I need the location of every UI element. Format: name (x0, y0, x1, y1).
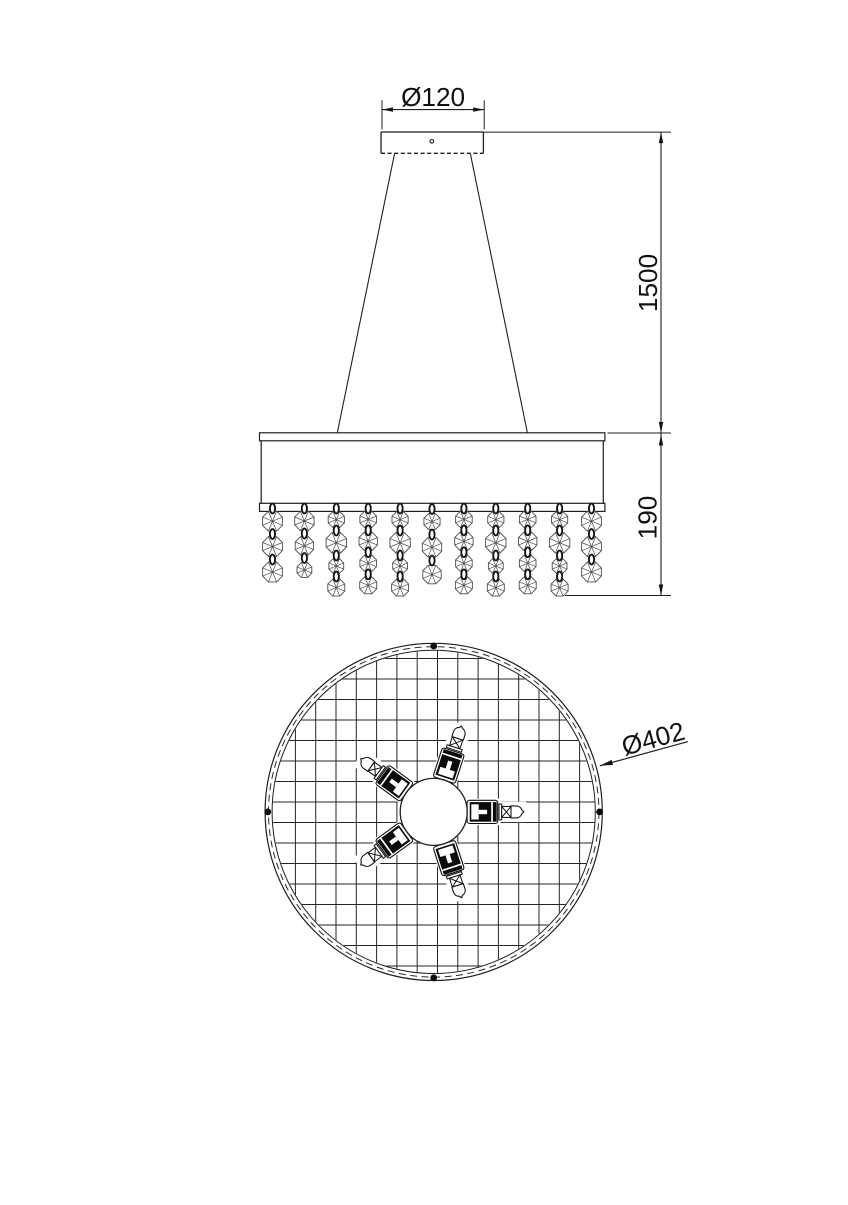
svg-text:Ø120: Ø120 (401, 82, 465, 112)
svg-text:Ø402: Ø402 (618, 716, 688, 762)
svg-text:1500: 1500 (633, 254, 663, 312)
svg-text:190: 190 (633, 496, 663, 540)
